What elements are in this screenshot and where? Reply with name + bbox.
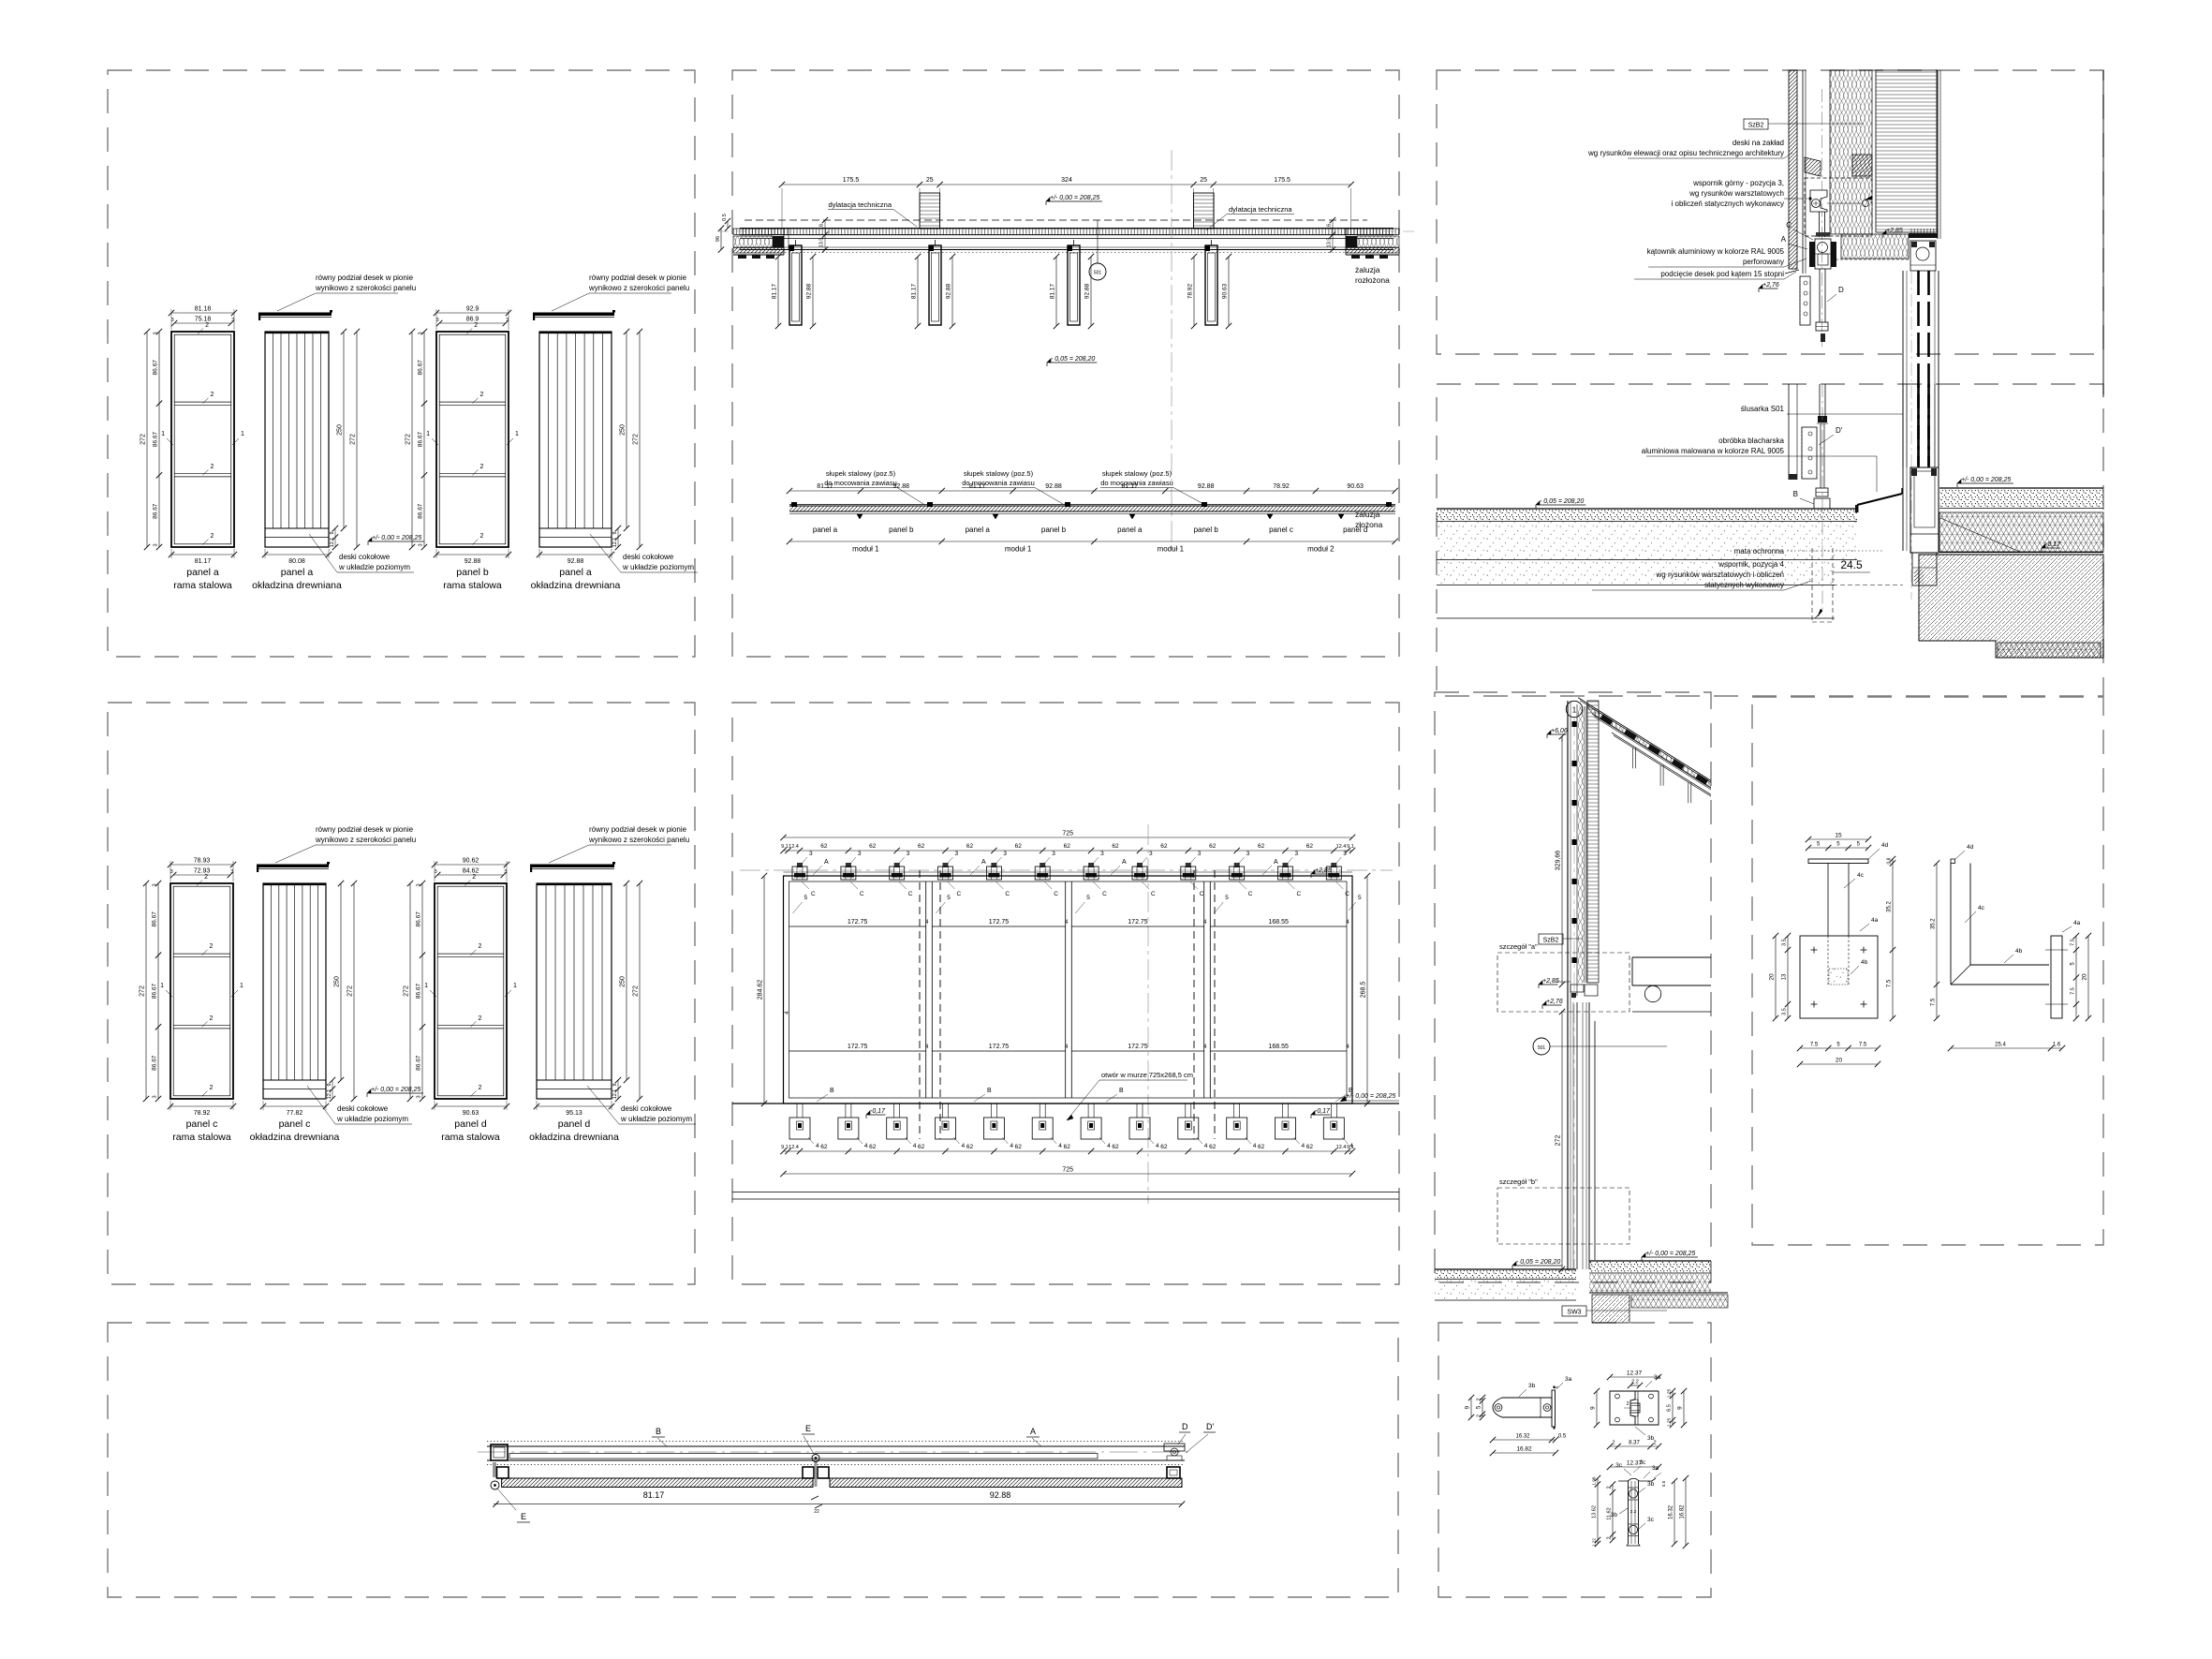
svg-text:3c: 3c — [1640, 1460, 1645, 1466]
svg-text:3: 3 — [1343, 851, 1347, 857]
svg-text:501: 501 — [1538, 1045, 1546, 1051]
svg-text:62: 62 — [1015, 1144, 1023, 1150]
svg-text:SzB2: SzB2 — [1748, 123, 1764, 129]
svg-text:i obliczeń statycznych wykonaw: i obliczeń statycznych wykonawcy — [1672, 200, 1785, 208]
svg-text:+/- 0,00 = 208,25: +/- 0,00 = 208,25 — [1346, 1093, 1395, 1100]
svg-text:62: 62 — [918, 1144, 925, 1150]
svg-text:C: C — [1151, 891, 1156, 897]
svg-text:3: 3 — [153, 1095, 158, 1098]
svg-text:7.5: 7.5 — [2071, 987, 2076, 995]
svg-text:3: 3 — [435, 869, 437, 875]
svg-text:A: A — [1274, 859, 1278, 866]
svg-text:16.32: 16.32 — [1515, 1434, 1530, 1440]
svg-text:1.25: 1.25 — [1667, 1418, 1673, 1428]
svg-text:725: 725 — [1062, 831, 1073, 837]
svg-text:4c: 4c — [1857, 872, 1865, 879]
svg-text:268.5: 268.5 — [1361, 982, 1367, 999]
svg-text:2: 2 — [210, 1015, 214, 1022]
svg-text:3: 3 — [154, 543, 159, 546]
svg-text:panel c: panel c — [279, 1118, 311, 1130]
svg-text:4: 4 — [1204, 1143, 1208, 1149]
svg-text:deski na zakład: deski na zakład — [1733, 139, 1784, 147]
svg-text:3: 3 — [419, 543, 424, 546]
svg-text:80.08: 80.08 — [288, 558, 305, 565]
svg-text:172.75: 172.75 — [989, 1044, 1010, 1050]
svg-text:13: 13 — [1782, 973, 1788, 980]
svg-text:72.93: 72.93 — [194, 868, 211, 875]
svg-text:172.75: 172.75 — [1128, 919, 1148, 926]
svg-text:9.1: 9.1 — [1347, 844, 1354, 850]
svg-text:22: 22 — [814, 1509, 819, 1515]
svg-text:3.5: 3.5 — [1782, 1008, 1788, 1015]
svg-text:75.18: 75.18 — [195, 317, 212, 323]
svg-text:podcięcie desek pod kątem 15 s: podcięcie desek pod kątem 15 stopni — [1660, 270, 1784, 278]
svg-text:86.67: 86.67 — [418, 431, 424, 447]
svg-text:272: 272 — [406, 434, 412, 445]
svg-text:16: 16 — [1327, 224, 1333, 230]
svg-text:C: C — [1786, 221, 1792, 230]
svg-text:C: C — [1297, 891, 1302, 897]
svg-text:9: 9 — [1465, 1405, 1471, 1409]
svg-text:16.82: 16.82 — [1680, 1504, 1686, 1519]
svg-text:12.1: 12.1 — [612, 1089, 618, 1100]
svg-text:62: 62 — [1258, 1144, 1265, 1150]
svg-text:3: 3 — [1003, 851, 1007, 857]
svg-text:2: 2 — [479, 943, 482, 950]
svg-text:3: 3 — [1100, 851, 1104, 857]
svg-text:3a: 3a — [1654, 1374, 1661, 1381]
svg-text:16: 16 — [819, 224, 825, 230]
svg-text:wynikowo z szerokości panelu: wynikowo z szerokości panelu — [315, 836, 416, 844]
svg-text:2: 2 — [1627, 1401, 1630, 1407]
svg-text:rama stalowa: rama stalowa — [173, 580, 232, 591]
svg-text:4: 4 — [784, 1011, 790, 1015]
svg-text:w układzie poziomym: w układzie poziomym — [620, 1115, 692, 1123]
svg-text:równy podział desek w pionie: równy podział desek w pionie — [589, 825, 687, 834]
svg-text:do mocowania zawiasu: do mocowania zawiasu — [962, 479, 1035, 487]
svg-text:96: 96 — [715, 236, 721, 242]
svg-text:4: 4 — [962, 1143, 966, 1149]
svg-text:86.67: 86.67 — [153, 503, 159, 519]
svg-text:12.4: 12.4 — [789, 1145, 799, 1150]
svg-text:168.55: 168.55 — [1268, 919, 1289, 926]
svg-text:62: 62 — [1112, 843, 1119, 850]
svg-text:12.1: 12.1 — [330, 538, 335, 548]
svg-text:obróbka blacharska: obróbka blacharska — [1718, 437, 1784, 445]
svg-text:2: 2 — [480, 392, 484, 398]
svg-text:1.98: 1.98 — [1592, 1476, 1597, 1485]
svg-text:C: C — [1248, 891, 1253, 897]
svg-text:4a: 4a — [2073, 920, 2081, 926]
svg-text:4: 4 — [1302, 1143, 1305, 1149]
svg-text:81.17: 81.17 — [1050, 283, 1056, 299]
svg-text:62: 62 — [1015, 843, 1023, 850]
svg-text:kątownik aluminiowy w kolorze: kątownik aluminiowy w kolorze RAL 9005 — [1647, 247, 1785, 256]
svg-text:0.8: 0.8 — [1887, 857, 1893, 864]
svg-text:250: 250 — [334, 976, 341, 987]
svg-text:moduł 1: moduł 1 — [1158, 545, 1185, 554]
svg-text:1: 1 — [515, 431, 519, 437]
svg-text:3: 3 — [417, 883, 422, 886]
svg-text:deski cokołowe: deski cokołowe — [621, 1104, 672, 1113]
svg-text:0.5: 0.5 — [722, 214, 728, 221]
svg-text:C: C — [811, 891, 816, 897]
svg-text:2: 2 — [1607, 1536, 1613, 1539]
svg-text:81.17: 81.17 — [195, 558, 212, 565]
svg-text:C: C — [1005, 891, 1010, 897]
svg-text:3: 3 — [506, 318, 509, 323]
svg-text:6.5: 6.5 — [1667, 1404, 1673, 1412]
svg-text:12.4: 12.4 — [789, 844, 799, 850]
svg-text:A: A — [824, 859, 829, 866]
svg-text:172.75: 172.75 — [848, 919, 868, 926]
svg-text:moduł 1: moduł 1 — [852, 545, 879, 554]
svg-text:8.37: 8.37 — [1629, 1441, 1640, 1446]
svg-text:deski cokołowe: deski cokołowe — [337, 1104, 389, 1113]
svg-text:moduł 2: moduł 2 — [1307, 545, 1335, 554]
svg-text:4c: 4c — [1978, 905, 1985, 911]
svg-text:4: 4 — [864, 1143, 868, 1149]
svg-text:4: 4 — [1010, 1143, 1013, 1149]
svg-text:272: 272 — [633, 985, 640, 997]
svg-text:-0,17: -0,17 — [2045, 541, 2061, 548]
svg-text:62: 62 — [1064, 843, 1071, 850]
svg-text:3: 3 — [907, 851, 910, 857]
svg-text:20: 20 — [2082, 973, 2088, 981]
svg-text:7.5: 7.5 — [1887, 979, 1893, 987]
svg-text:+2,76: +2,76 — [1546, 999, 1563, 1005]
svg-text:A: A — [981, 859, 986, 866]
svg-text:62: 62 — [1209, 843, 1217, 850]
svg-text:3a: 3a — [1565, 1376, 1572, 1383]
svg-text:wynikowo z szerokości panelu: wynikowo z szerokości panelu — [588, 836, 689, 844]
svg-text:13.5: 13.5 — [819, 238, 825, 248]
svg-text:5: 5 — [804, 895, 808, 901]
svg-text:w układzie poziomym: w układzie poziomym — [338, 563, 410, 571]
svg-text:20: 20 — [1769, 973, 1776, 981]
svg-text:3b: 3b — [1528, 1383, 1536, 1389]
svg-text:84.62: 84.62 — [463, 868, 479, 875]
svg-text:1: 1 — [424, 983, 428, 989]
svg-text:wg rysunków warsztatowych: wg rysunków warsztatowych — [1688, 189, 1784, 198]
svg-text:86.67: 86.67 — [418, 503, 424, 519]
svg-text:wg rysunków elewacji oraz opis: wg rysunków elewacji oraz opisu technicz… — [1587, 149, 1784, 157]
svg-text:słupek stalowy (poz.5): słupek stalowy (poz.5) — [1102, 469, 1172, 478]
svg-text:86.67: 86.67 — [416, 911, 422, 927]
svg-text:-0,17: -0,17 — [1315, 1108, 1331, 1115]
svg-text:7.5: 7.5 — [1931, 998, 1937, 1006]
svg-text:3: 3 — [153, 883, 158, 886]
svg-text:- 0,05 = 208,20: - 0,05 = 208,20 — [1051, 356, 1095, 363]
svg-text:2: 2 — [480, 533, 484, 540]
svg-text:250: 250 — [337, 424, 344, 436]
svg-text:rama stalowa: rama stalowa — [441, 1132, 500, 1143]
svg-text:5: 5 — [1086, 895, 1090, 901]
svg-text:86.67: 86.67 — [416, 983, 422, 999]
svg-text:panel c: panel c — [1269, 526, 1293, 534]
svg-text:E: E — [805, 1424, 811, 1433]
svg-text:wg rysunków warsztatowych i ob: wg rysunków warsztatowych i obliczeń — [1656, 570, 1785, 579]
svg-text:62: 62 — [820, 843, 828, 850]
svg-text:statycznych wykonawcy: statycznych wykonawcy — [1704, 581, 1784, 589]
svg-text:62: 62 — [1160, 843, 1168, 850]
svg-text:słupek stalowy (poz.5): słupek stalowy (poz.5) — [826, 469, 896, 478]
svg-text:9: 9 — [327, 1083, 332, 1086]
svg-text:62: 62 — [966, 843, 974, 850]
svg-text:panel d: panel d — [454, 1118, 487, 1130]
svg-text:62: 62 — [869, 843, 877, 850]
svg-text:C: C — [1054, 891, 1058, 897]
svg-text:1.6: 1.6 — [2053, 1043, 2061, 1048]
svg-text:12.1: 12.1 — [612, 538, 618, 548]
svg-text:13.62: 13.62 — [1592, 1505, 1598, 1518]
svg-text:78.92: 78.92 — [1273, 483, 1290, 490]
svg-text:panel d: panel d — [1343, 526, 1367, 534]
svg-text:272: 272 — [140, 434, 147, 445]
svg-text:25.4: 25.4 — [1995, 1043, 2006, 1048]
svg-text:78.92: 78.92 — [194, 1110, 211, 1117]
svg-text:81.18: 81.18 — [195, 306, 212, 313]
svg-text:9: 9 — [612, 1083, 618, 1086]
svg-text:równy podział desek w pionie: równy podział desek w pionie — [316, 274, 414, 282]
svg-text:A: A — [1781, 235, 1787, 244]
svg-text:92.88: 92.88 — [465, 558, 481, 565]
svg-text:B: B — [656, 1427, 661, 1436]
svg-text:deski cokołowe: deski cokołowe — [339, 553, 391, 561]
svg-text:175.5: 175.5 — [1274, 177, 1290, 184]
svg-text:35.2: 35.2 — [1931, 918, 1937, 929]
svg-text:1.25: 1.25 — [1667, 1389, 1673, 1399]
svg-text:77.82: 77.82 — [287, 1110, 303, 1117]
svg-text:78.92: 78.92 — [1187, 283, 1194, 299]
svg-text:mata ochronna: mata ochronna — [1734, 547, 1785, 555]
svg-text:3: 3 — [1295, 851, 1299, 857]
svg-text:równy podział desek w pionie: równy podział desek w pionie — [589, 274, 687, 282]
svg-text:dylatacja techniczna: dylatacja techniczna — [828, 200, 892, 209]
svg-text:4: 4 — [1107, 1143, 1111, 1149]
svg-text:175.5: 175.5 — [843, 177, 860, 184]
svg-text:C: C — [1345, 891, 1349, 897]
svg-text:panel a: panel a — [186, 567, 219, 578]
svg-text:92.88: 92.88 — [568, 558, 584, 565]
svg-text:1: 1 — [240, 983, 243, 989]
svg-text:86.67: 86.67 — [418, 360, 424, 376]
svg-text:1: 1 — [241, 431, 244, 437]
svg-text:panel d: panel d — [558, 1118, 591, 1130]
svg-text:0.5: 0.5 — [1661, 1480, 1666, 1487]
svg-text:okładzina drewniana: okładzina drewniana — [531, 580, 621, 591]
svg-text:62: 62 — [918, 843, 925, 850]
svg-text:62: 62 — [1258, 843, 1265, 850]
svg-text:1: 1 — [160, 983, 164, 989]
svg-text:62: 62 — [1306, 843, 1314, 850]
svg-text:13.5: 13.5 — [1327, 238, 1333, 248]
svg-text:3: 3 — [170, 869, 173, 875]
svg-text:2: 2 — [211, 533, 214, 540]
svg-text:272: 272 — [350, 434, 357, 445]
svg-text:86.9: 86.9 — [466, 317, 479, 323]
svg-text:3: 3 — [504, 869, 507, 875]
svg-text:+/- 0,00 = 208,25: +/- 0,00 = 208,25 — [1050, 195, 1099, 201]
svg-text:okładzina drewniana: okładzina drewniana — [250, 1132, 340, 1143]
svg-text:panel a: panel a — [559, 567, 592, 578]
svg-text:wspornik górny - pozycja 3,: wspornik górny - pozycja 3, — [1692, 179, 1784, 187]
svg-text:62: 62 — [966, 1144, 974, 1150]
svg-text:284.62: 284.62 — [758, 980, 764, 1000]
svg-text:250: 250 — [620, 976, 627, 987]
svg-text:B: B — [830, 1088, 834, 1094]
svg-text:0.5: 0.5 — [1558, 1434, 1567, 1440]
svg-text:panel a: panel a — [966, 526, 991, 534]
svg-text:- 0,05 = 208,20: - 0,05 = 208,20 — [1516, 1259, 1560, 1266]
svg-text:95.13: 95.13 — [566, 1110, 582, 1117]
svg-text:2: 2 — [479, 1085, 482, 1091]
svg-text:C: C — [860, 891, 864, 897]
svg-text:2: 2 — [1477, 1415, 1482, 1417]
svg-text:272: 272 — [404, 985, 410, 997]
svg-text:panel b: panel b — [456, 567, 489, 578]
svg-text:2: 2 — [1612, 1441, 1615, 1446]
svg-text:16.82: 16.82 — [1516, 1446, 1532, 1453]
svg-text:92.88: 92.88 — [1084, 283, 1091, 299]
svg-text:3: 3 — [171, 318, 174, 323]
svg-text:78.93: 78.93 — [194, 858, 211, 865]
svg-text:35.2: 35.2 — [1887, 901, 1893, 912]
svg-text:1: 1 — [513, 983, 517, 989]
svg-text:11.62: 11.62 — [1607, 1507, 1613, 1519]
svg-text:3: 3 — [1198, 851, 1202, 857]
svg-text:+2,85: +2,85 — [1886, 228, 1903, 234]
svg-text:wynikowo z szerokości panelu: wynikowo z szerokości panelu — [588, 284, 689, 292]
svg-text:3: 3 — [417, 1095, 422, 1098]
svg-text:272: 272 — [347, 985, 354, 997]
svg-text:A: A — [1122, 859, 1127, 866]
svg-text:25: 25 — [1200, 177, 1207, 184]
svg-text:2.2: 2.2 — [1631, 1380, 1639, 1385]
svg-text:+/- 0,00 = 208,25: +/- 0,00 = 208,25 — [371, 1087, 420, 1093]
svg-text:4: 4 — [1253, 1143, 1257, 1149]
svg-text:panel b: panel b — [889, 526, 914, 534]
svg-text:3: 3 — [1052, 851, 1055, 857]
svg-text:+/- 0,00 = 208,25: +/- 0,00 = 208,25 — [372, 535, 421, 541]
svg-text:4b: 4b — [2015, 948, 2023, 955]
svg-text:C: C — [1102, 891, 1107, 897]
svg-text:3: 3 — [1246, 851, 1250, 857]
svg-text:- 0,05 = 208,20: - 0,05 = 208,20 — [1540, 498, 1584, 505]
svg-text:5: 5 — [947, 895, 951, 901]
svg-text:3: 3 — [154, 332, 159, 334]
svg-text:9.1: 9.1 — [781, 1145, 789, 1150]
svg-text:90.63: 90.63 — [463, 1110, 479, 1117]
svg-text:A: A — [1030, 1427, 1036, 1436]
svg-text:81.17: 81.17 — [772, 283, 778, 299]
svg-text:86.67: 86.67 — [152, 911, 158, 927]
svg-text:86.67: 86.67 — [152, 983, 158, 999]
svg-text:7.5: 7.5 — [1859, 1043, 1867, 1048]
svg-text:panel a: panel a — [1117, 526, 1143, 534]
svg-text:B: B — [1793, 490, 1798, 498]
svg-text:SW3: SW3 — [1567, 1310, 1581, 1316]
svg-text:62: 62 — [1112, 1144, 1119, 1150]
svg-text:3: 3 — [419, 332, 424, 334]
svg-text:25: 25 — [926, 177, 934, 184]
svg-text:86.67: 86.67 — [153, 360, 159, 376]
svg-text:7.5: 7.5 — [2071, 939, 2076, 946]
svg-text:aluminiowa malowana w kolorze: aluminiowa malowana w kolorze RAL 9005 — [1642, 447, 1785, 455]
svg-text:12.37: 12.37 — [1627, 1370, 1643, 1377]
svg-text:dylatacja techniczna: dylatacja techniczna — [1229, 205, 1292, 214]
svg-text:+/- 0,00 = 208,25: +/- 0,00 = 208,25 — [1961, 477, 2011, 483]
svg-text:3c: 3c — [1647, 1517, 1655, 1523]
svg-text:4: 4 — [913, 1143, 917, 1149]
svg-text:B: B — [1119, 1088, 1124, 1094]
svg-text:2: 2 — [1607, 1486, 1613, 1489]
svg-text:1: 1 — [1572, 706, 1577, 715]
svg-text:w układzie poziomym: w układzie poziomym — [622, 563, 694, 571]
svg-text:92.88: 92.88 — [806, 283, 813, 299]
svg-text:szczegół "a": szczegół "a" — [1499, 942, 1538, 951]
svg-text:9: 9 — [1590, 1406, 1597, 1410]
svg-text:272: 272 — [633, 434, 640, 445]
svg-text:3: 3 — [1149, 851, 1153, 857]
svg-text:86.67: 86.67 — [152, 1055, 158, 1071]
svg-text:9: 9 — [330, 531, 335, 534]
svg-text:panel a: panel a — [813, 526, 838, 534]
svg-text:90.63: 90.63 — [1347, 483, 1364, 490]
svg-text:C: C — [908, 891, 913, 897]
svg-text:-0,17: -0,17 — [870, 1108, 886, 1115]
svg-text:żaluzja: żaluzja — [1355, 510, 1380, 519]
svg-text:szczegół "b": szczegół "b" — [1499, 1178, 1538, 1186]
svg-text:92.88: 92.88 — [946, 283, 952, 299]
svg-text:24.5: 24.5 — [1840, 558, 1863, 571]
svg-text:15: 15 — [1835, 833, 1842, 839]
svg-text:wynikowo z szerokości panelu: wynikowo z szerokości panelu — [315, 284, 416, 292]
svg-text:172.75: 172.75 — [848, 1044, 868, 1050]
svg-text:2: 2 — [480, 464, 484, 470]
svg-text:D': D' — [1836, 426, 1843, 435]
svg-text:62: 62 — [869, 1144, 877, 1150]
svg-text:2: 2 — [210, 943, 214, 950]
svg-text:9: 9 — [1677, 1406, 1684, 1410]
svg-text:5: 5 — [1358, 895, 1362, 901]
svg-text:do mocowania zawiasu: do mocowania zawiasu — [1100, 479, 1173, 487]
svg-text:9: 9 — [612, 531, 618, 534]
svg-text:E: E — [521, 1512, 526, 1521]
svg-text:62: 62 — [1209, 1144, 1217, 1150]
svg-text:rama stalowa: rama stalowa — [443, 580, 502, 591]
svg-text:92.9: 92.9 — [466, 306, 479, 313]
svg-text:90.63: 90.63 — [1222, 283, 1229, 299]
svg-text:4: 4 — [816, 1143, 819, 1149]
svg-text:w układzie poziomym: w układzie poziomym — [336, 1115, 408, 1123]
svg-text:1.22: 1.22 — [1592, 1538, 1597, 1547]
svg-text:92.88: 92.88 — [1045, 483, 1062, 490]
svg-text:92.88: 92.88 — [1198, 483, 1215, 490]
svg-text:2: 2 — [1477, 1398, 1482, 1400]
svg-text:ślusarka S01: ślusarka S01 — [1741, 405, 1785, 413]
svg-text:272: 272 — [140, 985, 146, 997]
svg-text:C: C — [957, 891, 962, 897]
svg-text:4b: 4b — [1861, 959, 1868, 966]
svg-text:4d: 4d — [1967, 844, 1974, 851]
svg-text:2: 2 — [211, 392, 214, 398]
svg-text:86.67: 86.67 — [416, 1055, 422, 1071]
svg-text:1: 1 — [161, 431, 165, 437]
svg-text:12.1: 12.1 — [327, 1089, 332, 1100]
svg-text:81.17: 81.17 — [911, 283, 918, 299]
svg-text:2: 2 — [479, 1015, 482, 1022]
